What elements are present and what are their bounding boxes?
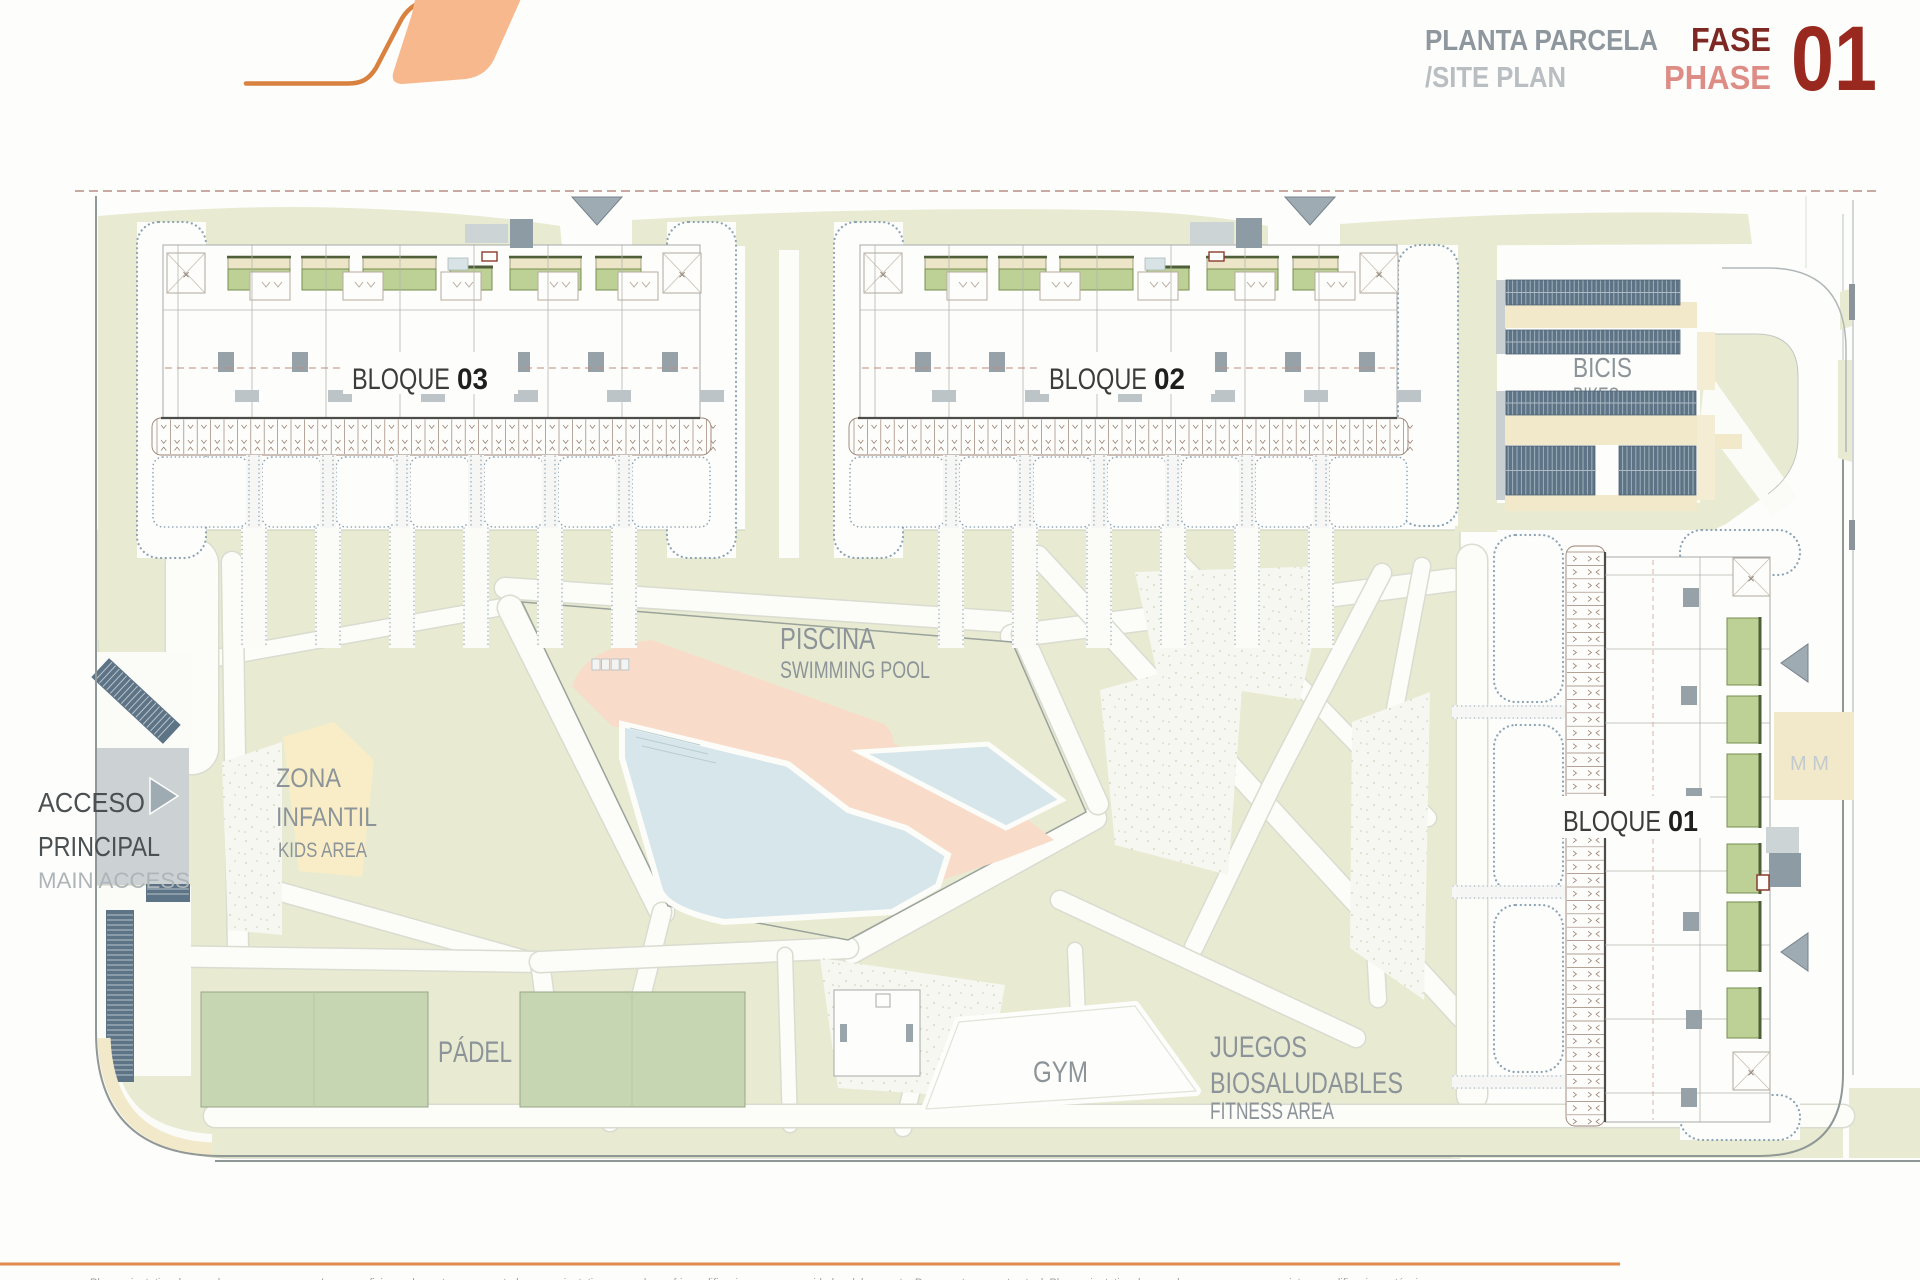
svg-text:INFANTIL: INFANTIL <box>276 802 377 832</box>
svg-text:GYM: GYM <box>1033 1056 1088 1089</box>
svg-text:JUEGOS: JUEGOS <box>1210 1031 1307 1064</box>
svg-text:×: × <box>1375 267 1383 282</box>
svg-text:MAIN ACCESS: MAIN ACCESS <box>38 868 190 893</box>
svg-text:03: 03 <box>457 363 488 396</box>
svg-text:FITNESS AREA: FITNESS AREA <box>1210 1098 1334 1125</box>
svg-text:BLOQUE: BLOQUE <box>352 363 450 396</box>
svg-text:01: 01 <box>1668 806 1698 838</box>
svg-text:FASE: FASE <box>1691 21 1771 58</box>
svg-text:PÁDEL: PÁDEL <box>438 1036 512 1069</box>
svg-text:×: × <box>879 267 887 282</box>
svg-text:BLOQUE: BLOQUE <box>1049 363 1147 396</box>
svg-text:PRINCIPAL: PRINCIPAL <box>38 831 160 862</box>
svg-text:×: × <box>182 267 190 282</box>
svg-text:KIDS AREA: KIDS AREA <box>278 839 367 862</box>
svg-text:ZONA: ZONA <box>276 763 341 793</box>
svg-text:×: × <box>1747 1065 1755 1080</box>
svg-text:PHASE: PHASE <box>1664 59 1771 96</box>
svg-text:ACCESO: ACCESO <box>38 787 145 818</box>
svg-text:01: 01 <box>1791 8 1877 110</box>
svg-text:PISCINA: PISCINA <box>780 621 875 656</box>
svg-text:/SITE PLAN: /SITE PLAN <box>1425 62 1566 94</box>
svg-text:×: × <box>1747 571 1755 586</box>
svg-text:BLOQUE: BLOQUE <box>1563 806 1661 838</box>
svg-text:BIOSALUDABLES: BIOSALUDABLES <box>1210 1067 1403 1100</box>
svg-text:SWIMMING POOL: SWIMMING POOL <box>780 657 930 684</box>
svg-text:02: 02 <box>1154 363 1185 396</box>
svg-text:PLANTA PARCELA: PLANTA PARCELA <box>1425 25 1658 57</box>
svg-text:BICIS: BICIS <box>1573 352 1632 383</box>
svg-text:M M: M M <box>1790 753 1829 775</box>
svg-text:×: × <box>678 267 686 282</box>
